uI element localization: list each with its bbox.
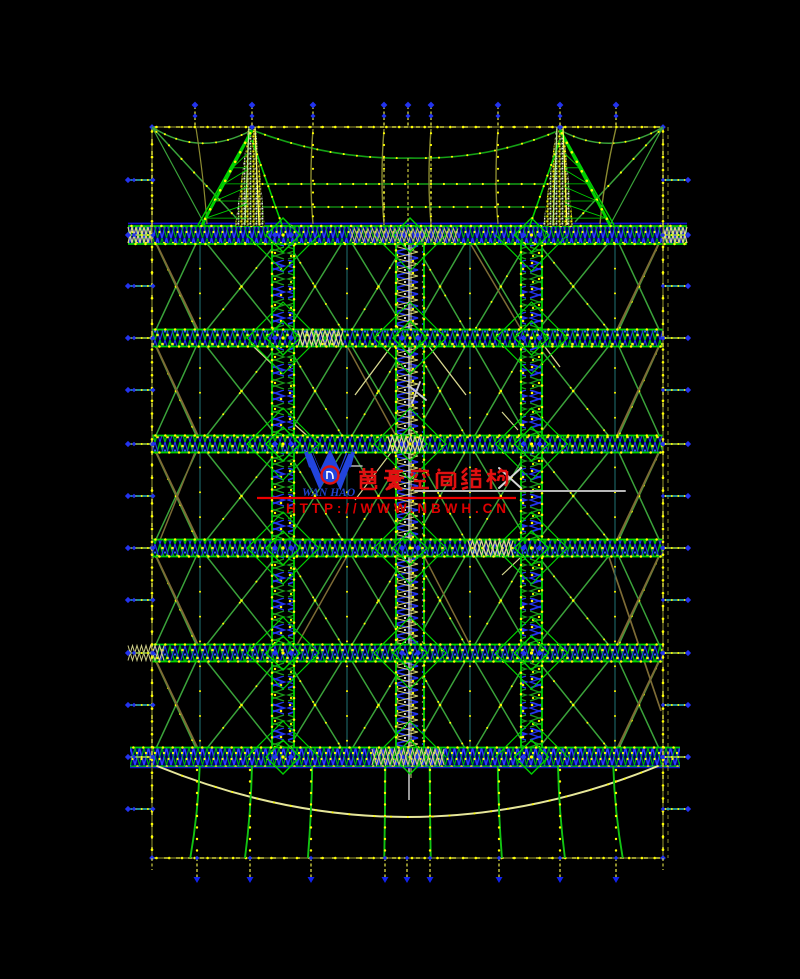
svg-text:HTTP://WWW.NBWH.CN: HTTP://WWW.NBWH.CN bbox=[286, 501, 510, 516]
